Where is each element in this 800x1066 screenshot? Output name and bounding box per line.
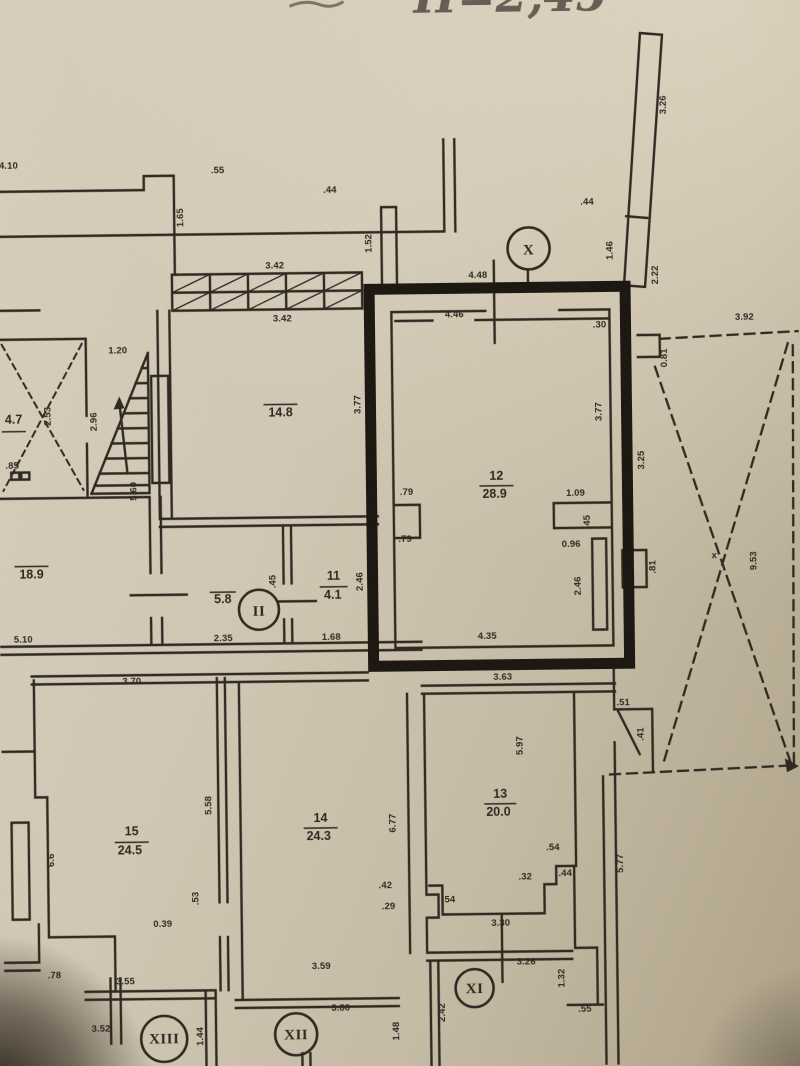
photo-shadow-bottom-left bbox=[0, 930, 200, 1066]
floor-plan-photo: 4.10.551.65.441.523.423.423.26.441.462.2… bbox=[0, 0, 800, 1066]
paper-grain bbox=[0, 0, 800, 1066]
photo-shadow-bottom-right bbox=[670, 960, 800, 1066]
floor-plan: 4.10.551.65.441.523.423.423.26.441.462.2… bbox=[0, 0, 800, 1066]
